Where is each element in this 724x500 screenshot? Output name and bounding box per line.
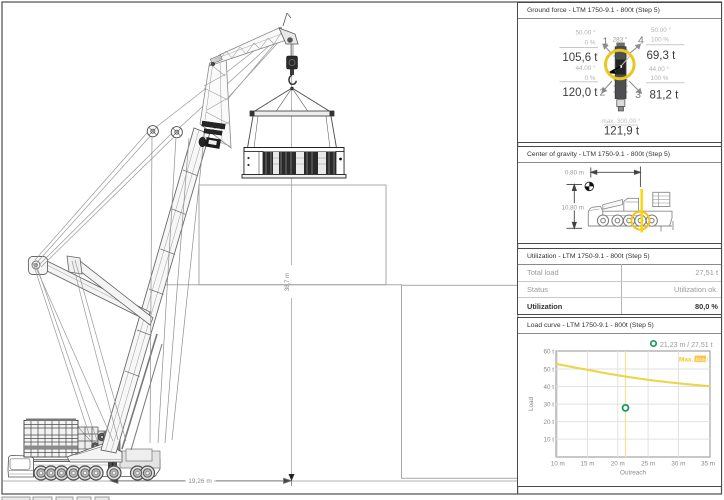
svg-text:30 m: 30 m	[671, 461, 685, 468]
svg-text:69,3 t: 69,3 t	[647, 50, 677, 62]
svg-text:30 t: 30 t	[543, 401, 554, 408]
svg-text:40 t: 40 t	[543, 384, 554, 391]
svg-text:81,2 t: 81,2 t	[650, 90, 680, 102]
svg-text:19,26 m: 19,26 m	[188, 478, 212, 485]
svg-text:10,80 m: 10,80 m	[562, 204, 584, 211]
svg-text:60 t: 60 t	[543, 348, 554, 355]
svg-text:Outreach: Outreach	[620, 470, 646, 477]
svg-text:3: 3	[635, 89, 641, 101]
svg-text:Load: Load	[528, 397, 535, 412]
svg-text:25 m: 25 m	[641, 461, 655, 468]
svg-text:44.00 °: 44.00 °	[649, 65, 670, 73]
svg-text:2: 2	[600, 87, 606, 99]
svg-text:20 m: 20 m	[611, 461, 625, 468]
svg-text:21,23 m / 27,51 t: 21,23 m / 27,51 t	[660, 342, 713, 349]
svg-text:38,7 m: 38,7 m	[285, 273, 291, 291]
svg-text:120,0 t: 120,0 t	[562, 87, 598, 99]
svg-text:100 %: 100 %	[651, 75, 669, 82]
svg-text:50.00 °: 50.00 °	[575, 29, 596, 37]
svg-text:35 m: 35 m	[701, 461, 715, 468]
svg-text:max. 300,00 °: max. 300,00 °	[602, 117, 641, 125]
svg-text:50.00 °: 50.00 °	[651, 26, 672, 34]
svg-text:0 %: 0 %	[585, 39, 596, 46]
svg-text:121,9 t: 121,9 t	[604, 126, 640, 138]
svg-text:20 t: 20 t	[543, 419, 554, 426]
svg-text:15 m: 15 m	[581, 461, 595, 468]
svg-text:50 t: 50 t	[543, 366, 554, 373]
svg-text:0,80 m: 0,80 m	[565, 170, 584, 177]
svg-text:10 t: 10 t	[543, 436, 554, 443]
svg-text:0 %: 0 %	[585, 75, 596, 82]
svg-text:1: 1	[603, 36, 609, 48]
svg-text:100 %: 100 %	[651, 37, 669, 44]
svg-text:10 m: 10 m	[551, 461, 565, 468]
svg-text:4: 4	[638, 35, 644, 47]
svg-text:105,6 t: 105,6 t	[562, 52, 598, 64]
svg-text:44.00 °: 44.00 °	[575, 64, 596, 72]
svg-text:Max.: Max.	[679, 357, 693, 364]
svg-text:load: load	[696, 356, 709, 363]
svg-text:283 °: 283 °	[613, 36, 628, 44]
